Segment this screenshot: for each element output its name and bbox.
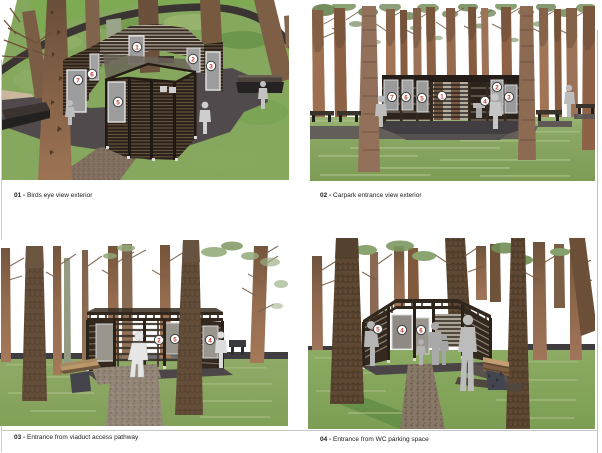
svg-text:7: 7 [390, 94, 394, 101]
svg-text:5: 5 [376, 326, 380, 333]
svg-text:2: 2 [495, 84, 499, 91]
svg-text:1: 1 [135, 45, 139, 52]
svg-text:6: 6 [90, 72, 94, 79]
svg-text:3: 3 [209, 64, 213, 71]
svg-text:5: 5 [173, 336, 177, 343]
svg-text:6: 6 [404, 94, 408, 101]
svg-text:2: 2 [191, 57, 195, 64]
svg-text:5: 5 [420, 95, 424, 102]
svg-text:3: 3 [507, 94, 511, 101]
svg-text:2: 2 [157, 337, 161, 344]
svg-text:7: 7 [76, 78, 80, 85]
svg-text:4: 4 [208, 337, 212, 344]
svg-text:1: 1 [440, 93, 444, 100]
svg-text:5: 5 [116, 100, 120, 107]
svg-text:4: 4 [400, 327, 404, 334]
svg-text:6: 6 [419, 327, 423, 334]
svg-text:4: 4 [483, 98, 487, 105]
